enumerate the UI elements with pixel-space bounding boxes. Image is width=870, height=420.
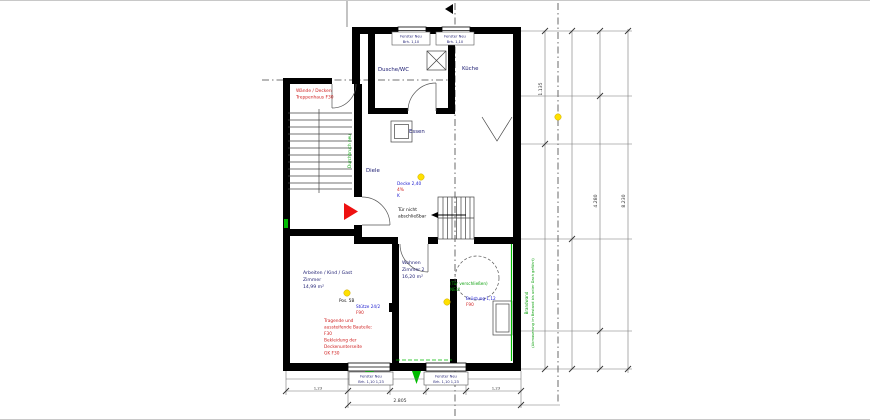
section-arrow-icon xyxy=(445,4,453,14)
window-label: Fenster Neu xyxy=(400,35,422,39)
window-label: Brh. 1,10 xyxy=(447,40,464,44)
window-label: Fenster Neu xyxy=(435,375,457,379)
yellow-dot-icon xyxy=(555,114,561,120)
window-label: Fenster Neu xyxy=(444,35,466,39)
yellow-dot-icon xyxy=(344,290,350,296)
green-wall-marker xyxy=(284,219,288,228)
dim-bottom-win2: 1,23 xyxy=(492,386,501,391)
note-door-2: abschließbar xyxy=(398,214,426,220)
note-brandwand-1: Brandwand xyxy=(524,291,529,314)
note-ceiling-blue: Decke 2,40 xyxy=(397,181,421,187)
main-stair xyxy=(288,109,352,193)
note-ceiling-red: 4% xyxy=(397,187,404,193)
note-ceiling-blue2: K xyxy=(397,193,400,199)
dimension-lines-right xyxy=(521,29,632,373)
yellow-dot-icon xyxy=(418,174,424,180)
room-label-kueche: Küche xyxy=(462,66,479,72)
window-label: Brh. 1,10 1,23 xyxy=(433,380,459,384)
note-fire-1: Tragende und xyxy=(323,318,354,324)
room-area-wohnen: 16,20 m² xyxy=(402,274,423,280)
inner-stair xyxy=(438,197,474,239)
note-durchbruch: Durchbruch neu xyxy=(347,134,352,168)
room-label-wohnen: Wohnen xyxy=(402,260,421,266)
note-stair-fire-1: Wände / Decken xyxy=(296,88,332,94)
walls xyxy=(283,27,521,371)
dim-bottom-win1: 1,23 xyxy=(314,386,323,391)
door-swing-dashed-circle xyxy=(455,256,499,300)
stair-direction-arrow-icon xyxy=(431,212,438,218)
note-fire-4: Bekleidung der xyxy=(324,338,357,344)
room-label-arbeiten: Arbeiten / Kind / Gast xyxy=(303,270,352,276)
note-brandwand-2: (Abmauerung im Bestand bis unter Dach ge… xyxy=(531,258,535,348)
room-label-dusche-wc: Dusche/WC xyxy=(378,67,409,73)
note-column-blue: Stütze 24/2 xyxy=(356,304,380,309)
dim-right-main: 4.280 xyxy=(593,194,599,207)
note-fire-5: Deckenunterseite xyxy=(324,344,362,350)
note-stair-fire-2: Treppenhaus F30 xyxy=(295,95,334,101)
note-fire-6: GK F30 xyxy=(324,351,340,357)
dim-right-total: 8.230 xyxy=(621,194,627,207)
green-arrow-icon xyxy=(412,371,421,384)
window-label: Brh. 1,10 xyxy=(403,40,420,44)
yellow-dot-icon xyxy=(444,299,450,305)
note-sill-blue: Brüstung 1,12 xyxy=(466,296,496,301)
window-label: Brh. 1,10 1,23 xyxy=(358,380,384,384)
room-label-wohnen-2: Zimmer 2 xyxy=(402,267,425,273)
room-area-arbeiten: 14,99 m² xyxy=(303,284,324,290)
note-fire-2: aussteifende Bauteile: xyxy=(324,325,372,331)
room-label-diele: Diele xyxy=(366,168,380,174)
yellow-markers xyxy=(344,114,561,305)
room-label-arbeiten-2: Zimmer xyxy=(303,277,321,283)
red-arrow-marker-icon xyxy=(344,203,358,220)
note-green-door-1: (Tür verschließen) xyxy=(450,281,488,286)
window-label: Fenster Neu xyxy=(360,375,382,379)
note-column-red: F90 xyxy=(356,310,364,315)
dimension-ticks-right xyxy=(542,28,631,372)
room-label-essen: Essen xyxy=(409,129,425,135)
floor-plan-page: Fenster Neu Brh. 1,10 Fenster Neu Brh. 1… xyxy=(0,0,870,420)
floor-plan-drawing: Fenster Neu Brh. 1,10 Fenster Neu Brh. 1… xyxy=(0,1,870,420)
dim-bottom-total: 2.805 xyxy=(393,398,406,404)
note-sill-red: F90 xyxy=(466,302,474,307)
note-green-door-2: NEU! xyxy=(450,287,461,292)
dim-right-upper: 1.135 xyxy=(538,82,544,95)
note-fire-3: F30 xyxy=(324,331,332,337)
note-door-1: Tür nicht xyxy=(397,207,417,213)
dimension-lines-bottom xyxy=(286,371,560,408)
note-column-black: Pos. 5B xyxy=(339,298,354,303)
